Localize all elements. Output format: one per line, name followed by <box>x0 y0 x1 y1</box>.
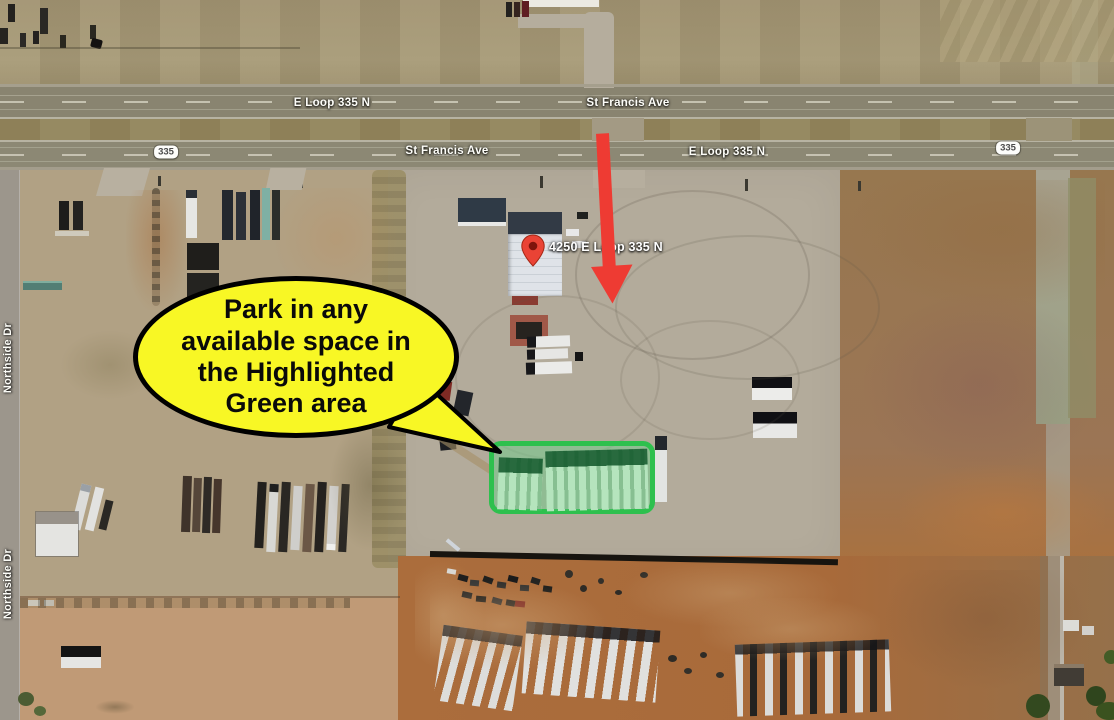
salvage-yard <box>398 556 1114 720</box>
green-trailer-row-right <box>545 449 649 512</box>
bubble-line: the Highlighted <box>138 357 454 388</box>
northside-drive-road <box>0 170 20 720</box>
road-label-northside-lower: Northside Dr <box>2 549 14 619</box>
field-east-lower <box>840 446 1114 566</box>
speech-bubble: Park in any available space in the Highl… <box>133 276 459 438</box>
road-label-st-francis-bottom: St Francis Ave <box>405 145 488 157</box>
location-pin-icon[interactable] <box>520 234 546 267</box>
field-east <box>840 170 1114 446</box>
field-southwest <box>0 596 398 720</box>
dirt-road-east <box>1036 170 1070 424</box>
route-shield-335-left: 335 <box>154 146 178 159</box>
road-label-st-francis-top: St Francis Ave <box>586 97 669 109</box>
highway-eastbound <box>0 86 1114 118</box>
pin-address-label: 4250 E Loop 335 N <box>549 240 663 254</box>
highway-median <box>0 118 1114 142</box>
road-label-northside-upper: Northside Dr <box>2 323 14 393</box>
bubble-line: Park in any <box>138 294 454 325</box>
bubble-line: available space in <box>138 326 454 357</box>
road-southeast <box>1048 556 1064 720</box>
route-shield-335-right: 335 <box>996 142 1020 155</box>
field-north <box>0 0 1114 86</box>
speech-bubble-text: Park in any available space in the Highl… <box>138 294 454 419</box>
road-label-e-loop-top: E Loop 335 N <box>294 97 370 109</box>
green-trailer-row-left <box>497 457 543 511</box>
road-label-e-loop-bottom: E Loop 335 N <box>689 146 765 158</box>
highlighted-parking-area <box>489 441 655 514</box>
bubble-line: Green area <box>138 388 454 419</box>
satellite-map[interactable]: E Loop 335 N St Francis Ave St Francis A… <box>0 0 1114 720</box>
dirt-road-east-lower <box>1046 424 1070 566</box>
